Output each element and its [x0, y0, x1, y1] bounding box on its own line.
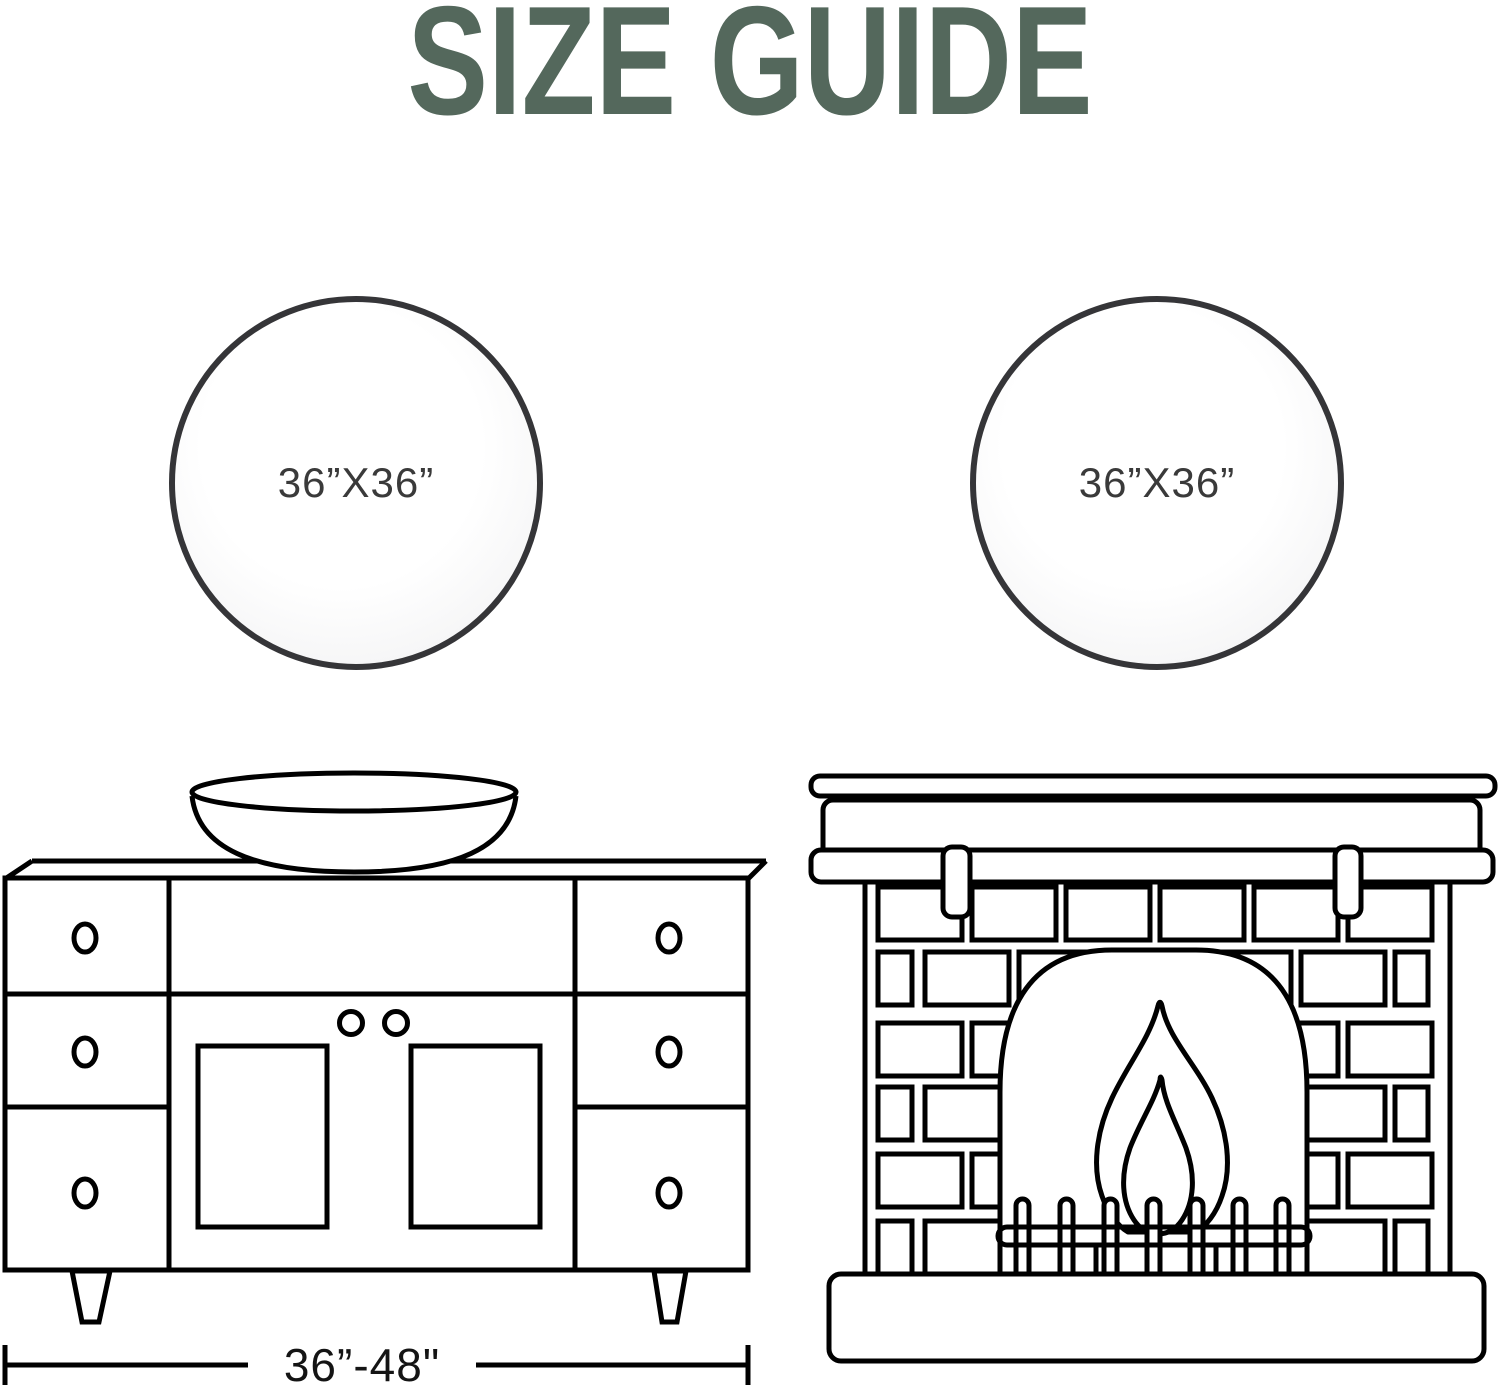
grate-prong [1060, 1199, 1073, 1279]
door-knob [340, 1012, 363, 1035]
corbel-right [1335, 847, 1361, 917]
fireplace-drawing [811, 776, 1495, 1361]
drawer-knob [74, 1038, 96, 1066]
grate-prong [1104, 1199, 1117, 1279]
grate-prong [1016, 1199, 1029, 1279]
corbel-left [943, 847, 970, 917]
mantel-bottom-slab [811, 850, 1493, 882]
drawer-knob [658, 1038, 680, 1066]
mantel-top-slab [811, 776, 1495, 796]
sink-bowl [192, 773, 516, 872]
cabinet-foot-right [654, 1271, 686, 1322]
drawer-knob [74, 1179, 96, 1207]
line-drawings [0, 0, 1500, 1389]
drawer-knob [74, 924, 96, 952]
grate-prong [1190, 1199, 1203, 1279]
vanity-drawing [5, 773, 766, 1385]
grate-prong [1276, 1199, 1289, 1279]
counter-corner-right [748, 861, 766, 879]
drawer-knob [658, 1179, 680, 1207]
cabinet-body [5, 878, 748, 1270]
drawer-knob [658, 924, 680, 952]
bowl-rim [192, 773, 516, 811]
vanity-width-label: 36”-48" [248, 1338, 476, 1392]
hearth-base [829, 1274, 1484, 1361]
grate-prong [1233, 1199, 1246, 1279]
cabinet-foot-left [72, 1271, 110, 1322]
door-knob [385, 1012, 408, 1035]
grate-prong [1147, 1199, 1160, 1279]
